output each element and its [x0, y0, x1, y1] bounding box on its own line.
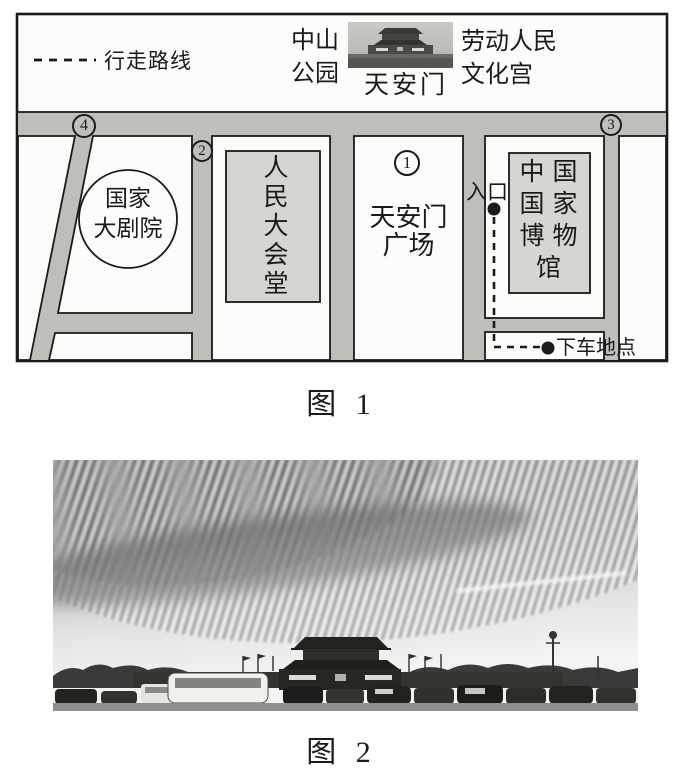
block-east-sliver — [619, 136, 666, 360]
national-theatre-line1: 国家 — [79, 184, 177, 214]
national-theatre-line2: 大剧院 — [79, 214, 177, 244]
entrance-label: 入口 — [466, 179, 508, 205]
museum-label: 中国 国家 博物 馆 — [509, 157, 590, 285]
cultural-palace-line2: 文化宫 — [461, 59, 557, 92]
museum-line2: 国家 — [515, 189, 590, 221]
dropoff-label: 下车地点 — [556, 336, 636, 361]
tiananmen-square-line2: 广场 — [354, 232, 463, 260]
museum-south-road — [485, 318, 619, 332]
block-southwest — [49, 333, 192, 360]
tiananmen-photo — [53, 460, 638, 711]
national-theatre-label: 国家 大剧院 — [79, 184, 177, 244]
tiananmen-square-line1: 天安门 — [354, 204, 463, 232]
cultural-palace-label: 劳动人民 文化宫 — [461, 26, 557, 92]
museum-line1: 中国 — [515, 157, 590, 189]
museum-line4: 馆 — [515, 253, 590, 285]
museum-line3: 博物 — [515, 221, 590, 253]
legend-label: 行走路线 — [104, 48, 192, 74]
circled-number-4: 4 — [72, 114, 96, 138]
vertical-road-2 — [330, 133, 354, 360]
figure1-caption: 图 1 — [0, 379, 683, 423]
zhongshan-park-line1: 中山 — [291, 25, 339, 58]
great-hall-label: 人民大会堂 — [255, 154, 291, 299]
zhongshan-park-label: 中山 公园 — [291, 25, 339, 91]
circled-number-1: 1 — [394, 150, 420, 176]
worksheet-page: 行走路线 中山 公园 天安门 劳动人民 文化宫 1 2 3 4 国家 大剧院 人… — [0, 0, 683, 776]
cultural-palace-line1: 劳动人民 — [461, 26, 557, 59]
circled-number-3: 3 — [600, 114, 622, 136]
tiananmen-thumbnail-art — [348, 22, 453, 68]
branch-road — [45, 313, 212, 333]
figure2-caption: 图 2 — [0, 727, 683, 771]
vertical-road-3 — [463, 133, 485, 360]
photo-skyline — [53, 576, 638, 711]
tiananmen-square-label: 天安门 广场 — [354, 204, 463, 260]
zhongshan-park-line2: 公园 — [291, 58, 339, 91]
main-road — [18, 112, 666, 136]
great-hall-label-box: 人民大会堂 — [226, 151, 320, 302]
dropoff-dot — [542, 342, 555, 355]
tiananmen-thumbnail-photo — [348, 22, 453, 68]
circled-number-2: 2 — [191, 140, 213, 162]
tiananmen-gate-label: 天安门 — [364, 70, 448, 101]
